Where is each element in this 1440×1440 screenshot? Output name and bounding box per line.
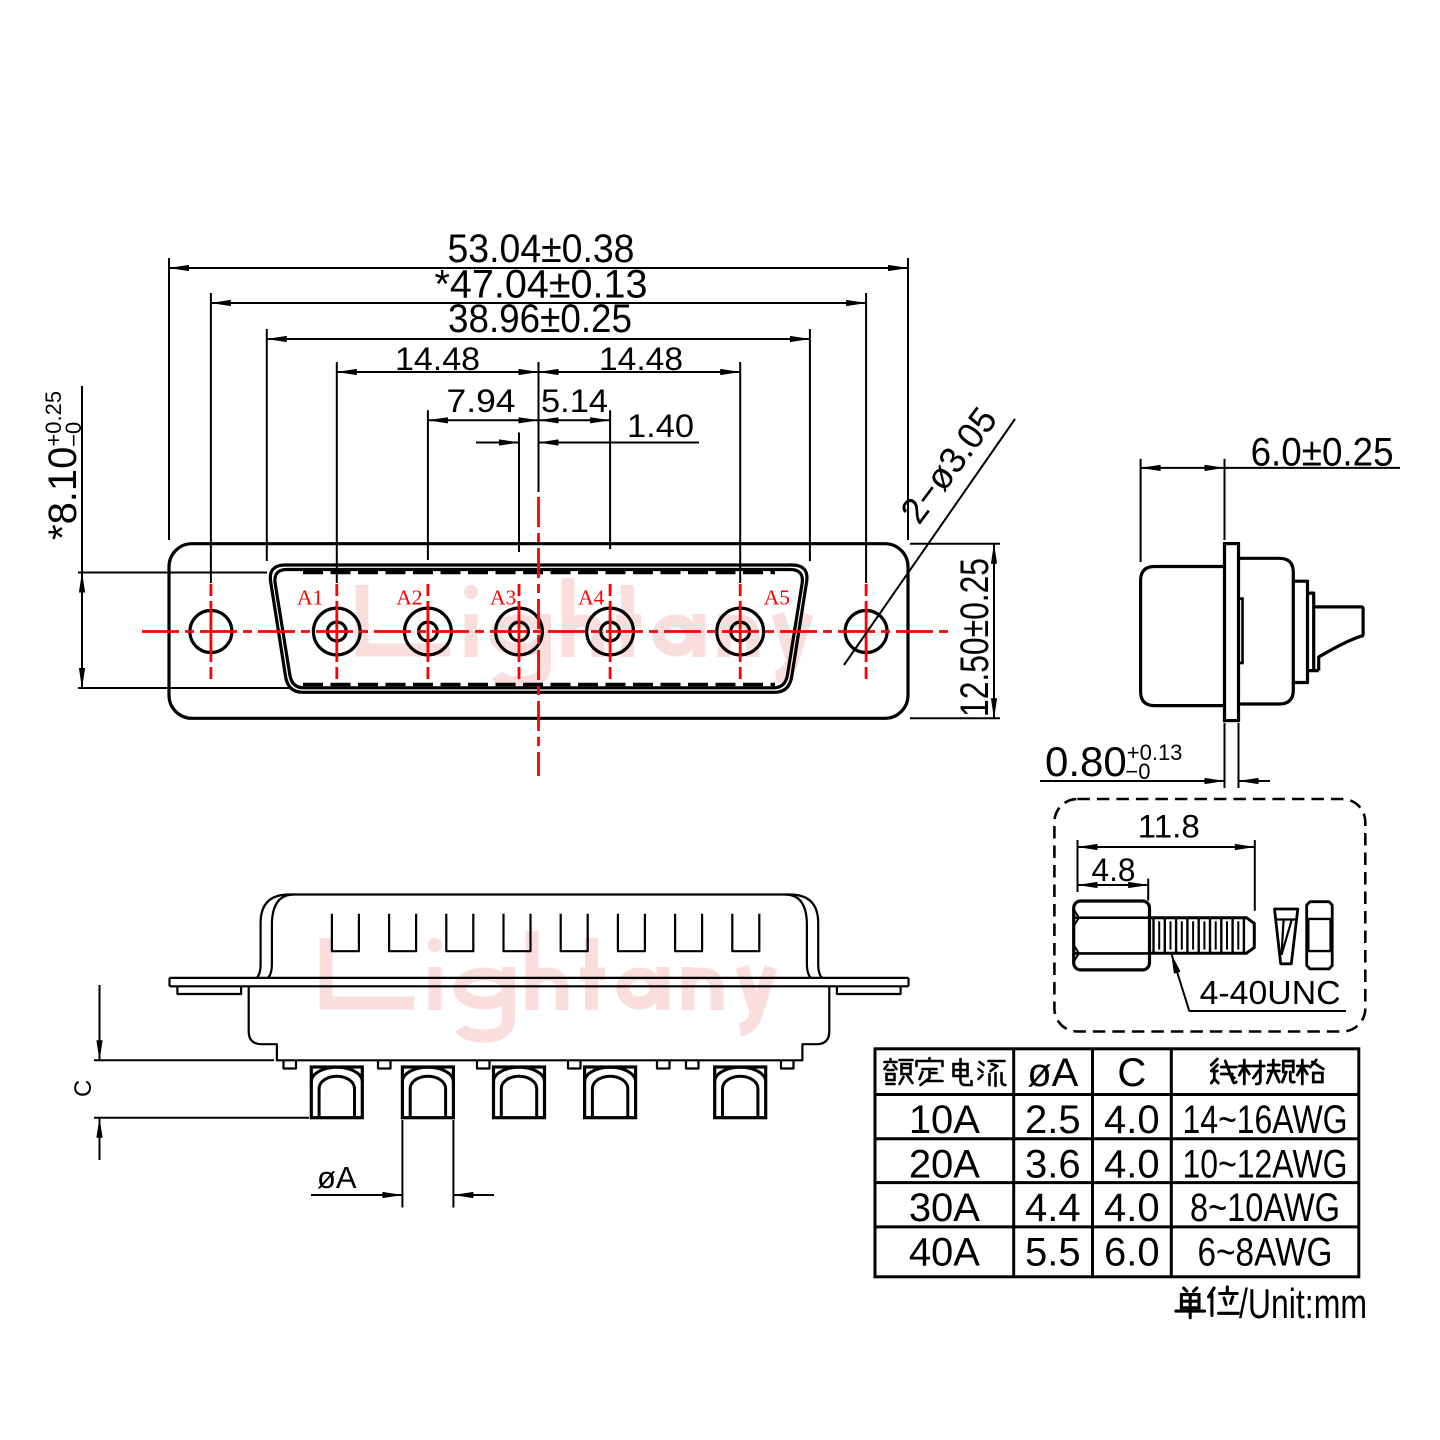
svg-text:40A: 40A [909,1230,980,1274]
svg-text:8~10AWG: 8~10AWG [1190,1186,1340,1230]
svg-text:C: C [1117,1051,1146,1095]
svg-text:3.6: 3.6 [1025,1142,1081,1186]
svg-text:4.0: 4.0 [1104,1186,1160,1230]
svg-text:A3: A3 [490,586,516,610]
svg-text:1.40: 1.40 [627,408,694,444]
svg-text:30A: 30A [909,1186,980,1230]
svg-text:10~12AWG: 10~12AWG [1183,1142,1348,1186]
svg-text:5.14: 5.14 [541,383,608,419]
svg-text:4.0: 4.0 [1104,1098,1160,1142]
svg-text:6.0: 6.0 [1104,1230,1160,1274]
svg-text:2.5: 2.5 [1025,1098,1081,1142]
svg-text:A2: A2 [396,586,422,610]
svg-text:A5: A5 [764,586,790,610]
svg-text:38.96±0.25: 38.96±0.25 [448,297,632,341]
svg-text:C: C [70,1080,97,1097]
svg-text:4.8: 4.8 [1092,852,1136,888]
svg-text:11.8: 11.8 [1138,809,1200,845]
svg-text:øA: øA [1027,1051,1078,1095]
svg-text:A1: A1 [297,586,323,610]
svg-text:/Unit:mm: /Unit:mm [1239,1280,1367,1327]
svg-text:øA: øA [317,1160,357,1195]
svg-text:4-40UNC: 4-40UNC [1200,974,1341,1011]
svg-text:20A: 20A [909,1142,980,1186]
svg-text:5.5: 5.5 [1025,1230,1081,1274]
svg-text:12.50±0.25: 12.50±0.25 [953,558,997,717]
svg-text:10A: 10A [909,1098,980,1142]
svg-text:6~8AWG: 6~8AWG [1198,1230,1333,1274]
svg-text:A4: A4 [578,586,605,610]
svg-text:4.0: 4.0 [1104,1142,1160,1186]
svg-text:4.4: 4.4 [1025,1186,1081,1230]
svg-text:14~16AWG: 14~16AWG [1183,1098,1348,1142]
svg-text:7.94: 7.94 [447,383,516,419]
